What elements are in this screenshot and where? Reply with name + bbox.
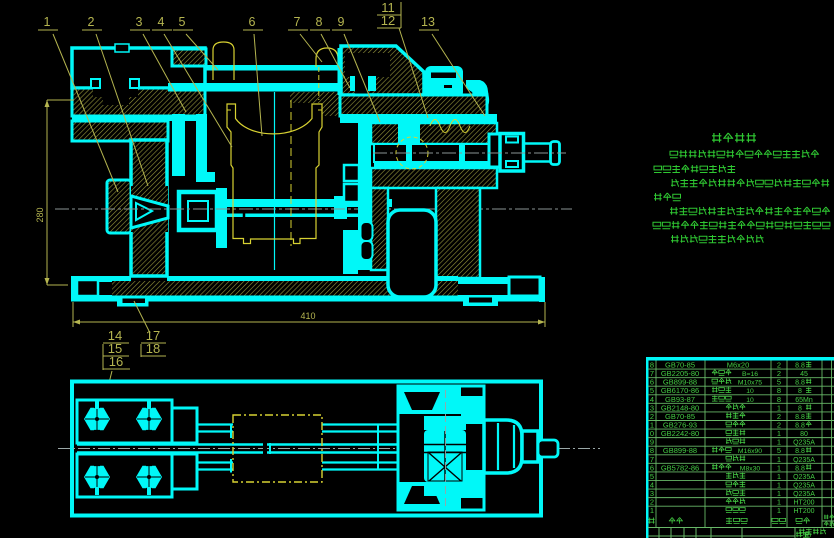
svg-text:M6x20: M6x20 xyxy=(727,361,750,370)
svg-text:65Mn: 65Mn xyxy=(795,397,813,404)
svg-text:8.8: 8.8 xyxy=(795,363,805,370)
svg-text:12: 12 xyxy=(381,13,395,28)
svg-text:80: 80 xyxy=(800,431,808,438)
svg-text:Q235A: Q235A xyxy=(793,474,815,481)
svg-text:10: 10 xyxy=(746,388,754,395)
svg-text:Q235A: Q235A xyxy=(793,457,815,464)
svg-text:1: 1 xyxy=(777,506,781,515)
svg-text:Q235A: Q235A xyxy=(793,491,815,498)
svg-text:8.8: 8.8 xyxy=(795,448,805,455)
svg-text:5: 5 xyxy=(179,15,186,29)
svg-text:45: 45 xyxy=(800,371,808,378)
svg-text:9: 9 xyxy=(338,15,345,29)
svg-text:13: 13 xyxy=(421,15,435,29)
svg-text:18: 18 xyxy=(146,341,160,356)
svg-text:16: 16 xyxy=(109,354,123,369)
svg-text:7: 7 xyxy=(294,15,301,29)
svg-text:8: 8 xyxy=(316,15,323,29)
svg-text:Q235A: Q235A xyxy=(793,482,815,489)
svg-text:1: 1 xyxy=(650,506,654,515)
svg-text:B=16: B=16 xyxy=(742,371,758,378)
svg-text:10: 10 xyxy=(746,397,754,404)
svg-text:HT200: HT200 xyxy=(793,508,814,515)
svg-text:8.8: 8.8 xyxy=(795,465,805,472)
svg-text:M8x30: M8x30 xyxy=(740,465,761,472)
svg-text:GB5782-86: GB5782-86 xyxy=(661,463,699,472)
svg-text:280: 280 xyxy=(35,207,45,222)
svg-text:2: 2 xyxy=(88,15,95,29)
svg-text:6: 6 xyxy=(249,15,256,29)
svg-text:8.8: 8.8 xyxy=(795,414,805,421)
svg-text:HT200: HT200 xyxy=(793,500,814,507)
svg-text:8: 8 xyxy=(798,405,802,412)
svg-text:3: 3 xyxy=(136,15,143,29)
svg-text:1: 1 xyxy=(44,15,51,29)
svg-text:8: 8 xyxy=(798,388,802,395)
svg-text:4: 4 xyxy=(158,15,165,29)
svg-text:M16x90: M16x90 xyxy=(738,448,762,455)
svg-text:8.8: 8.8 xyxy=(795,422,805,429)
svg-text:Q235A: Q235A xyxy=(793,440,815,447)
svg-text:8.8: 8.8 xyxy=(795,380,805,387)
svg-text:GB899-88: GB899-88 xyxy=(663,446,697,455)
svg-text:M10x75: M10x75 xyxy=(738,380,762,387)
svg-text:410: 410 xyxy=(300,311,315,321)
svg-text:GB2242-80: GB2242-80 xyxy=(661,429,699,438)
